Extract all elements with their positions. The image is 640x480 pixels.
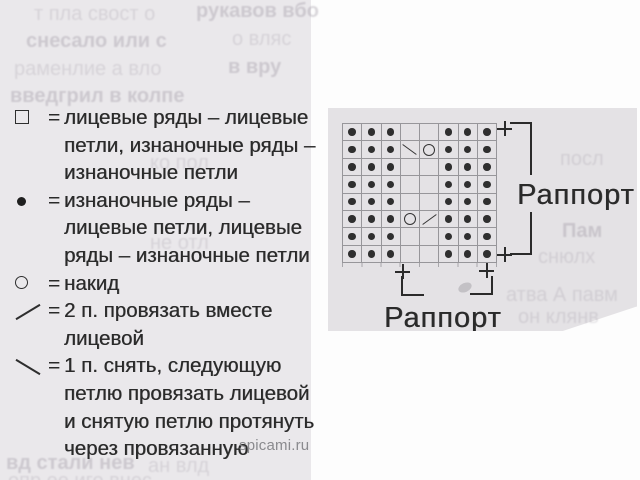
- chart-cell: [362, 159, 381, 176]
- chart-cell: [362, 176, 381, 193]
- chart-cell: [382, 141, 401, 158]
- chart-cell: [382, 124, 401, 141]
- purl-dot-symbol: [368, 128, 376, 136]
- rapport-bracket-bottom: [470, 293, 493, 295]
- purl-dot-symbol: [464, 198, 472, 206]
- chart-cell: [459, 246, 478, 263]
- yarn-over-symbol: [404, 213, 416, 225]
- rapport-bracket-bottom: [401, 276, 403, 296]
- empty-square-icon: [15, 110, 29, 124]
- purl-dot-symbol: [368, 250, 376, 258]
- chart-cell: [401, 194, 420, 211]
- chart-cell: [362, 194, 381, 211]
- legend-line: накид: [64, 270, 314, 298]
- slash-icon: [15, 304, 40, 320]
- purl-dot-symbol: [464, 233, 472, 241]
- chart-cell: [382, 159, 401, 176]
- chart-cell: [382, 211, 401, 228]
- purl-dot-symbol: [483, 128, 491, 136]
- legend-line: петлю провязать лицевой: [64, 380, 314, 408]
- legend-symbol-cell: [14, 270, 48, 298]
- legend-symbol-cell: [14, 187, 48, 270]
- purl-dot-symbol: [387, 215, 395, 223]
- chart-cell: [439, 176, 458, 193]
- chart-cell: [459, 124, 478, 141]
- purl-dot-symbol: [368, 198, 376, 206]
- chart-cell: [459, 159, 478, 176]
- purl-dot-symbol: [483, 250, 491, 258]
- circle-icon: [15, 276, 28, 289]
- purl-dot-symbol: [387, 163, 395, 171]
- equals-sign: =: [48, 104, 64, 187]
- purl-dot-symbol: [387, 233, 395, 241]
- purl-dot-symbol: [348, 233, 356, 241]
- slip-psso-symbol: [403, 144, 417, 155]
- legend-item: =изнаночные ряды –лицевые петли, лицевые…: [14, 187, 314, 270]
- purl-dot-symbol: [445, 198, 453, 206]
- chart-cell: [439, 194, 458, 211]
- purl-dot-symbol: [464, 128, 472, 136]
- chart-cell: [478, 211, 497, 228]
- rapport-bracket-right: [530, 212, 532, 255]
- chart-cell: [420, 124, 439, 141]
- chart-cell: [401, 228, 420, 245]
- purl-dot-symbol: [483, 215, 491, 223]
- purl-dot-symbol: [348, 146, 356, 154]
- purl-dot-symbol: [387, 128, 395, 136]
- legend-item: =2 п. провязать вместелицевой: [14, 297, 314, 352]
- chart-cell: [401, 176, 420, 193]
- purl-dot-symbol: [483, 146, 491, 154]
- purl-dot-symbol: [348, 163, 356, 171]
- chart-cell: [478, 194, 497, 211]
- chart-cell: [401, 159, 420, 176]
- chart-cell: [343, 176, 362, 193]
- chart-cell: [478, 159, 497, 176]
- purl-dot-symbol: [445, 250, 453, 258]
- scanned-page: Раппорт Раппорт т пла свост орукавов вбо…: [0, 0, 640, 480]
- rapport-bracket-right: [530, 122, 532, 175]
- yarn-over-symbol: [423, 144, 435, 156]
- purl-dot-symbol: [445, 163, 453, 171]
- chart-cell: [382, 228, 401, 245]
- chart-cell: [362, 246, 381, 263]
- chart-cell: [362, 124, 381, 141]
- chart-cell: [401, 141, 420, 158]
- purl-dot-symbol: [387, 198, 395, 206]
- legend-line: лицевой: [64, 325, 314, 353]
- symbol-legend: =лицевые ряды – лицевыепетли, изнаночные…: [14, 104, 314, 463]
- chart-cell: [420, 194, 439, 211]
- legend-item: =лицевые ряды – лицевыепетли, изнаночные…: [14, 104, 314, 187]
- chart-cell: [382, 194, 401, 211]
- chart-cell: [439, 159, 458, 176]
- chart-cell: [382, 176, 401, 193]
- chart-cell: [420, 176, 439, 193]
- purl-dot-symbol: [368, 146, 376, 154]
- equals-sign: =: [48, 187, 64, 270]
- legend-line: изнаночные ряды –: [64, 187, 314, 215]
- chart-cell: [420, 141, 439, 158]
- legend-line: петли, изнаночные ряды –: [64, 132, 315, 160]
- legend-line: изнаночные петли: [64, 159, 315, 187]
- legend-text: изнаночные ряды –лицевые петли, лицевыер…: [64, 187, 314, 270]
- legend-symbol-cell: [14, 352, 48, 462]
- rapport-label-right: Раппорт: [517, 179, 635, 212]
- purl-dot-symbol: [348, 198, 356, 206]
- chart-cell: [362, 141, 381, 158]
- purl-dot-symbol: [368, 181, 376, 189]
- purl-dot-symbol: [445, 181, 453, 189]
- chart-cell: [343, 141, 362, 158]
- grid-edge-stubs: [342, 263, 497, 267]
- chart-cell: [343, 211, 362, 228]
- chart-cell: [459, 228, 478, 245]
- chart-cell: [420, 211, 439, 228]
- chart-cell: [343, 124, 362, 141]
- chart-cell: [478, 176, 497, 193]
- chart-cell: [439, 141, 458, 158]
- legend-line: и снятую петлю протянуть: [64, 408, 314, 436]
- purl-dot-symbol: [387, 146, 395, 154]
- equals-sign: =: [48, 270, 64, 298]
- purl-dot-symbol: [464, 181, 472, 189]
- chart-cell: [459, 194, 478, 211]
- chart-cell: [382, 246, 401, 263]
- legend-line: лицевые петли, лицевые: [64, 214, 314, 242]
- chart-panel: Раппорт Раппорт: [328, 108, 637, 331]
- purl-dot-symbol: [483, 198, 491, 206]
- legend-line: лицевые ряды – лицевые: [64, 104, 315, 132]
- knitting-chart-grid: [342, 123, 497, 263]
- chart-cell: [439, 228, 458, 245]
- purl-dot-symbol: [348, 181, 356, 189]
- chart-cell: [343, 159, 362, 176]
- chart-cell: [478, 246, 497, 263]
- purl-dot-symbol: [368, 163, 376, 171]
- purl-dot-symbol: [348, 128, 356, 136]
- chart-cell: [459, 211, 478, 228]
- legend-symbol-cell: [14, 104, 48, 187]
- purl-dot-symbol: [464, 146, 472, 154]
- purl-dot-symbol: [483, 233, 491, 241]
- equals-sign: =: [48, 297, 64, 352]
- k2tog-symbol: [422, 214, 436, 225]
- purl-dot-symbol: [445, 128, 453, 136]
- backslash-icon: [15, 359, 40, 375]
- rapport-bracket-right: [510, 122, 532, 124]
- rapport-label-bottom: Раппорт: [384, 302, 502, 335]
- chart-cell: [439, 246, 458, 263]
- chart-cell: [362, 228, 381, 245]
- purl-dot-symbol: [348, 250, 356, 258]
- purl-dot-symbol: [368, 233, 376, 241]
- purl-dot-symbol: [445, 146, 453, 154]
- filled-dot-icon: [17, 197, 26, 206]
- chart-cell: [343, 246, 362, 263]
- chart-cell: [420, 228, 439, 245]
- legend-line: ряды – изнаночные петли: [64, 242, 314, 270]
- purl-dot-symbol: [464, 163, 472, 171]
- chart-cell: [478, 228, 497, 245]
- purl-dot-symbol: [445, 233, 453, 241]
- chart-cell: [478, 124, 497, 141]
- rapport-bracket-right: [510, 253, 532, 255]
- purl-dot-symbol: [387, 181, 395, 189]
- purl-dot-symbol: [483, 163, 491, 171]
- legend-item: =накид: [14, 270, 314, 298]
- chart-cell: [439, 124, 458, 141]
- purl-dot-symbol: [483, 181, 491, 189]
- chart-cell: [401, 211, 420, 228]
- chart-cell: [343, 228, 362, 245]
- legend-symbol-cell: [14, 297, 48, 352]
- legend-line: 1 п. снять, следующую: [64, 352, 314, 380]
- chart-cell: [362, 211, 381, 228]
- chart-cell: [343, 194, 362, 211]
- purl-dot-symbol: [368, 215, 376, 223]
- chart-cell: [420, 159, 439, 176]
- legend-text: накид: [64, 270, 314, 298]
- chart-cell: [401, 124, 420, 141]
- chart-cell: [459, 176, 478, 193]
- legend-text: 2 п. провязать вместелицевой: [64, 297, 314, 352]
- legend-line: 2 п. провязать вместе: [64, 297, 314, 325]
- chart-cell: [420, 246, 439, 263]
- legend-text: лицевые ряды – лицевыепетли, изнаночные …: [64, 104, 315, 187]
- purl-dot-symbol: [348, 215, 356, 223]
- chart-cell: [478, 141, 497, 158]
- purl-dot-symbol: [464, 250, 472, 258]
- chart-cell: [401, 246, 420, 263]
- purl-dot-symbol: [464, 215, 472, 223]
- equals-sign: =: [48, 352, 64, 462]
- purl-dot-symbol: [387, 250, 395, 258]
- chart-cell: [459, 141, 478, 158]
- watermark: spicami.ru: [239, 437, 309, 454]
- purl-dot-symbol: [445, 215, 453, 223]
- rapport-bracket-bottom: [401, 294, 424, 296]
- chart-cell: [439, 211, 458, 228]
